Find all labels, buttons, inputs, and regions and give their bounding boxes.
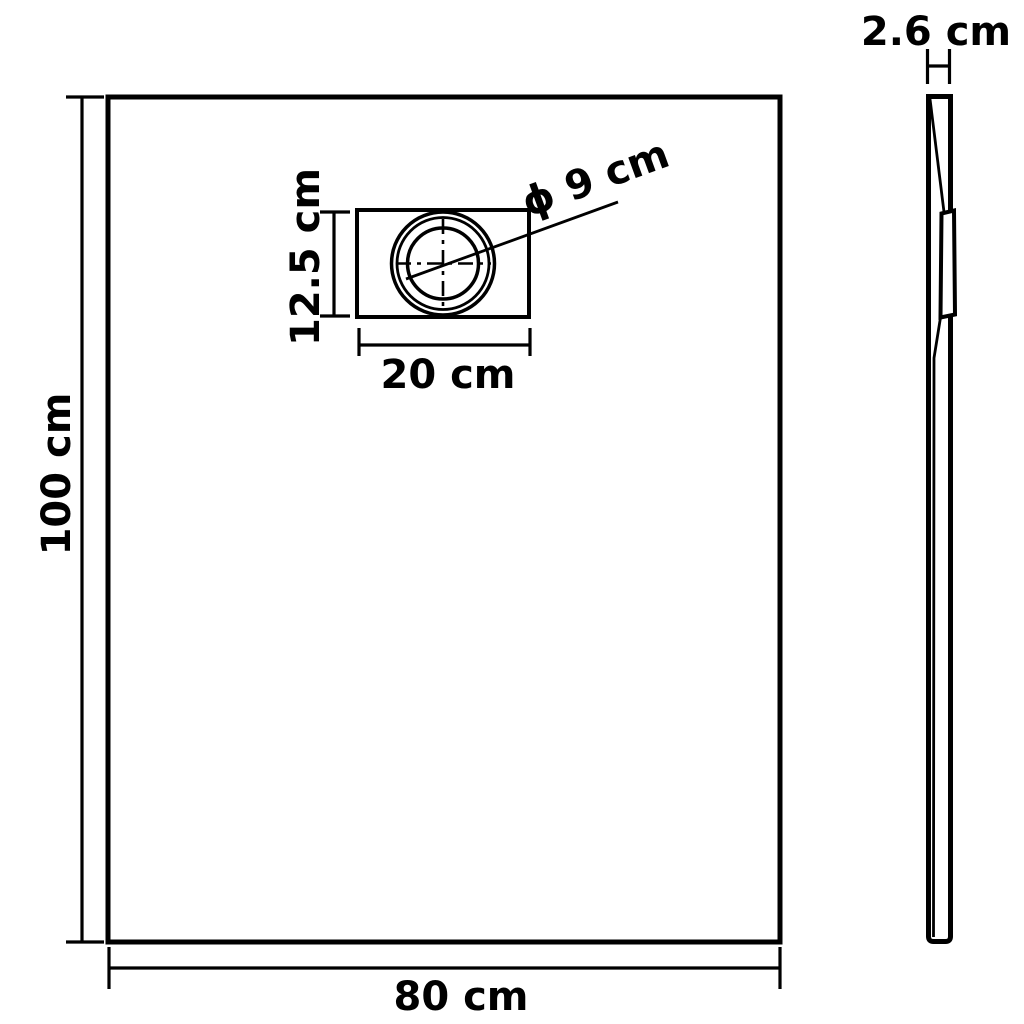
height-dimension: 100 cm <box>34 97 104 942</box>
thickness-label: 2.6 cm <box>861 9 1011 55</box>
front-view: ϕ 9 cm 12.5 cm 20 cm 100 cm <box>34 97 780 1020</box>
drain-width-label: 20 cm <box>381 352 516 398</box>
width-label: 80 cm <box>394 974 529 1020</box>
side-view-drain-housing <box>941 211 956 318</box>
drain-height-label: 12.5 cm <box>283 168 329 346</box>
thickness-dimension: 2.6 cm <box>861 9 1011 84</box>
height-label: 100 cm <box>34 393 80 556</box>
side-view: 2.6 cm <box>861 9 1011 942</box>
drain-detail <box>357 210 529 317</box>
drawing-canvas: ϕ 9 cm 12.5 cm 20 cm 100 cm <box>0 0 1024 1024</box>
width-dimension: 80 cm <box>109 947 780 1020</box>
dimension-drawing: ϕ 9 cm 12.5 cm 20 cm 100 cm <box>0 0 1024 1024</box>
